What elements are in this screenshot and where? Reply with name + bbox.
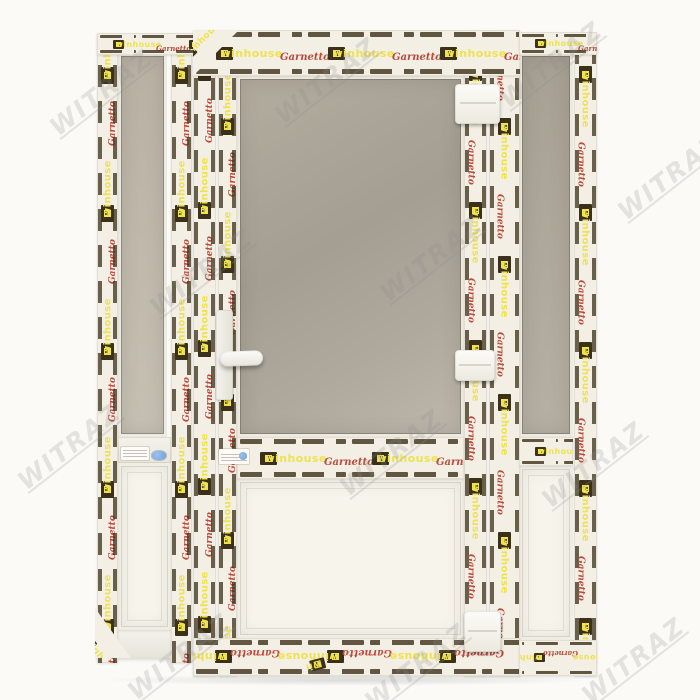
partner-text: Garnetto [504, 52, 520, 63]
quality-sticker [152, 451, 166, 460]
tape-print [302, 472, 346, 477]
right-sidelight-bottom-frame-tape: winhouse Garnetto winhouse Garnetto [519, 640, 597, 676]
right-sidelight-top-frame-tape: winhouse Garnetto winhouse Garnetto [519, 32, 597, 55]
tape-print [564, 671, 592, 674]
winhouse-logo: winhouse [535, 447, 546, 456]
partner-text: Garnetto [230, 648, 280, 659]
door-hinge-top [455, 84, 500, 124]
brand-text: winhouse [103, 436, 114, 493]
tape-print: winhouse [195, 478, 214, 495]
tape-print [522, 642, 558, 645]
tape-print: winhouse [576, 342, 595, 359]
winhouse-logo: winhouse [189, 40, 194, 49]
brand-text: winhouse [193, 651, 228, 664]
tape-segment: Garnetto [489, 444, 520, 498]
winhouse-logo: winhouse [372, 452, 389, 465]
tape-print [370, 640, 414, 645]
tape-print: winhouse [495, 256, 514, 273]
brand-text: winhouse [200, 571, 211, 628]
tape-print [370, 669, 414, 674]
tape-print [258, 69, 302, 74]
tape-print: winhouse [576, 204, 595, 221]
winhouse-logo: winhouse [579, 342, 592, 359]
door-unit: winhouse Garnetto winhouse Garnetto winh… [95, 28, 597, 678]
brand-text: winhouse [103, 298, 114, 355]
winhouse-logo: winhouse [199, 202, 212, 219]
left-sidelight-bottom-panel [118, 463, 171, 630]
tape-segment: Garnetto [464, 390, 487, 444]
tape-print: winhouse [218, 532, 237, 549]
tape-segment: winhouse [595, 32, 597, 55]
tape-print [564, 642, 592, 645]
tape-print: winhouse [98, 205, 117, 222]
tape-print [564, 461, 573, 464]
tape-segment: Garnetto [574, 116, 597, 170]
winhouse-logo: winhouse [199, 340, 212, 357]
partner-text: Garnetto [182, 653, 192, 663]
winhouse-logo: winhouse [579, 480, 592, 497]
partner-text: Garnetto [108, 515, 118, 560]
door-hinge-bottom [464, 611, 501, 652]
tape-segment: winhouse [519, 640, 561, 676]
winhouse-logo: winhouse [469, 202, 482, 219]
winhouse-logo: winhouse [498, 532, 511, 549]
tape-print: winhouse [172, 619, 191, 636]
tape-segment: Garnetto [574, 530, 597, 584]
tape-print [258, 669, 302, 674]
winhouse-logo: winhouse [95, 632, 97, 651]
winhouse-logo: winhouse [176, 67, 189, 84]
winhouse-logo: winhouse [102, 343, 115, 360]
tape-print: winhouse [195, 340, 214, 357]
tape-segment: winhouse [464, 168, 487, 252]
tape-segment: winhouse [574, 308, 597, 392]
tape-print: winhouse [576, 618, 595, 635]
winhouse-logo: winhouse [222, 532, 235, 549]
spec-label [121, 447, 149, 460]
tape-print [482, 69, 520, 74]
tape-print: winhouse [218, 256, 237, 273]
tape-segment: winhouse [97, 33, 139, 55]
winhouse-logo: winhouse [113, 40, 124, 49]
winhouse-logo: winhouse [102, 481, 115, 498]
winhouse-logo: winhouse [176, 481, 189, 498]
tape-print [100, 50, 136, 53]
tape-segment: Garnetto [299, 437, 349, 479]
right-sidelight-right-frame-tape: winhouse Garnetto winhouse Garnetto winh… [574, 32, 597, 676]
partner-text: Garnetto [205, 236, 215, 281]
winhouse-logo: winhouse [579, 204, 592, 221]
door-bottom-panel [237, 479, 464, 638]
tape-print [564, 50, 592, 53]
tape-segment: Garnetto [411, 437, 461, 479]
partner-text: Garnetto [182, 377, 192, 422]
winhouse-logo: winhouse [535, 39, 546, 48]
label-text-lines [123, 450, 147, 457]
tape-print: winhouse [98, 343, 117, 360]
winhouse-logo: winhouse [176, 205, 189, 222]
brand-text: winhouse [177, 436, 188, 493]
door-top-frame-tape: winhouse Garnetto winhouse Garnetto winh… [193, 30, 520, 76]
door-glass [237, 76, 464, 437]
partner-text: Garnetto [182, 101, 192, 146]
tape-print: winhouse [172, 205, 191, 222]
tape-segment: winhouse [574, 446, 597, 530]
tape-segment: winhouse [489, 222, 520, 306]
winhouse-logo: winhouse [176, 343, 189, 360]
brand-text: winhouse [389, 651, 451, 664]
tape-segment: winhouse [305, 30, 367, 76]
tape-print: winhouse [172, 481, 191, 498]
left-sidelight-glass [118, 53, 167, 437]
tape-print: winhouse [495, 394, 514, 411]
brand-text: winhouse [200, 295, 211, 352]
winhouse-logo: winhouse [328, 47, 345, 60]
brand-text: winhouse [200, 433, 211, 490]
tape-print [522, 461, 558, 464]
tape-print [258, 640, 302, 645]
tape-segment: Garnetto [574, 254, 597, 308]
partner-text: Garnetto [205, 98, 215, 143]
winhouse-logo: winhouse [222, 118, 235, 135]
brand-text: winhouse [572, 654, 597, 663]
tape-segment: winhouse [173, 33, 193, 55]
tape-print: winhouse [172, 343, 191, 360]
tape-segment: Garnetto [464, 252, 487, 306]
left-sidelight-right-frame-tape: winhouse Garnetto winhouse Garnetto winh… [171, 33, 192, 663]
tape-print: winhouse [172, 67, 191, 84]
tape-segment: winhouse [417, 30, 479, 76]
tape-print [240, 472, 296, 477]
brand-text: winhouse [103, 160, 114, 217]
tape-segment: winhouse [349, 437, 411, 479]
left-sidelight-left-frame-tape: winhouse Garnetto winhouse Garnetto winh… [97, 33, 118, 663]
partner-text: Garnetto [108, 101, 118, 146]
tape-segment: winhouse [595, 640, 597, 676]
winhouse-logo: winhouse [579, 66, 592, 83]
tape-print: winhouse [576, 480, 595, 497]
tape-print: winhouse [218, 118, 237, 135]
partner-text: Garnetto [228, 152, 238, 197]
tape-print [176, 50, 193, 53]
partner-text: Garnetto [228, 566, 238, 611]
tape-print [196, 669, 252, 674]
tape-print: winhouse [195, 202, 214, 219]
partner-text: Garnetto [182, 515, 192, 560]
brand-text: winhouse [223, 487, 234, 544]
door-hinge-middle [455, 350, 495, 381]
tape-print [196, 640, 252, 645]
partner-text: Garnetto [108, 377, 118, 422]
tape-segment: winhouse [574, 170, 597, 254]
tape-print [414, 472, 458, 477]
winhouse-logo: winhouse [176, 619, 189, 636]
partner-text: Garnetto [108, 239, 118, 284]
tape-print: winhouse [466, 478, 485, 495]
winhouse-logo: winhouse [193, 44, 198, 62]
winhouse-logo: winhouse [579, 618, 592, 635]
tape-print [522, 671, 558, 674]
tape-segment: Garnetto [139, 33, 173, 55]
tape-segment: Garnetto [489, 168, 520, 222]
tape-segment: Garnetto [479, 30, 520, 76]
tape-segment: Garnetto [255, 30, 305, 76]
winhouse-logo: winhouse [102, 205, 115, 222]
watermark: WITRAZ [612, 127, 700, 225]
tape-print [522, 50, 558, 53]
winhouse-logo: winhouse [309, 657, 326, 671]
brand-text: winhouse [200, 157, 211, 214]
tape-segment: Garnetto [464, 528, 487, 582]
door-lock-rail-tape: winhouse Garnetto winhouse Garnetto winh… [237, 437, 464, 479]
brand-text: winhouse [223, 73, 234, 130]
tape-segment: winhouse [171, 585, 192, 663]
brand-text: winhouse [192, 40, 194, 49]
door-handle-lever [220, 350, 263, 366]
winhouse-logo: winhouse [199, 478, 212, 495]
winhouse-logo: winhouse [498, 256, 511, 273]
winhouse-logo: winhouse [440, 47, 457, 60]
lock-rail-label [219, 449, 249, 464]
quality-sticker [239, 452, 247, 460]
winhouse-logo: winhouse [222, 256, 235, 273]
tape-segment: winhouse [519, 32, 561, 55]
right-sidelight-transom-tape: winhouse Garnetto winhouse Garnetto [519, 437, 573, 466]
partner-text: Garnetto [182, 239, 192, 284]
tape-segment: winhouse [464, 444, 487, 528]
tape-print [352, 472, 408, 477]
right-sidelight-bottom-panel [519, 466, 573, 640]
tape-print [420, 69, 476, 74]
tape-segment: Garnetto [574, 392, 597, 446]
winhouse-logo: winhouse [498, 394, 511, 411]
door-left-frame-tape: winhouse Garnetto winhouse Garnetto winh… [193, 30, 216, 676]
brand-text: winhouse [177, 298, 188, 355]
brand-text: winhouse [177, 574, 188, 631]
tape-segment: Garnetto [561, 32, 595, 55]
partner-text: Garnetto [205, 374, 215, 419]
tape-print [482, 669, 520, 674]
tape-print [308, 69, 364, 74]
tape-print: winhouse [98, 67, 117, 84]
tape-segment: winhouse [519, 437, 561, 466]
tape-print [420, 669, 476, 674]
tape-print: winhouse [466, 202, 485, 219]
tape-segment: winhouse [489, 498, 520, 582]
tape-segment: Garnetto [367, 30, 417, 76]
tape-segment: Garnetto [561, 437, 573, 466]
brand-text: winhouse [223, 211, 234, 268]
tape-print: winhouse [495, 532, 514, 549]
tape-print [196, 69, 252, 74]
right-sidelight-glass [519, 53, 573, 437]
winhouse-logo: winhouse [469, 478, 482, 495]
winhouse-logo: winhouse [260, 452, 277, 465]
partner-text: Garnetto [205, 512, 215, 557]
brand-text: winhouse [519, 654, 543, 663]
tape-segment: winhouse [461, 437, 464, 479]
tape-print [142, 50, 170, 53]
left-sidelight-top-frame-tape: winhouse Garnetto winhouse Garnetto [97, 33, 193, 55]
tape-print: winhouse [576, 66, 595, 83]
tape-print: winhouse [98, 481, 117, 498]
winhouse-logo: winhouse [199, 616, 212, 633]
partner-text: Garnetto [436, 457, 464, 468]
product-photo: winhouse Garnetto winhouse Garnetto winh… [0, 0, 700, 700]
tape-print [370, 69, 414, 74]
brand-text: winhouse [177, 160, 188, 217]
tape-print: winhouse [195, 616, 214, 633]
winhouse-logo: winhouse [102, 67, 115, 84]
